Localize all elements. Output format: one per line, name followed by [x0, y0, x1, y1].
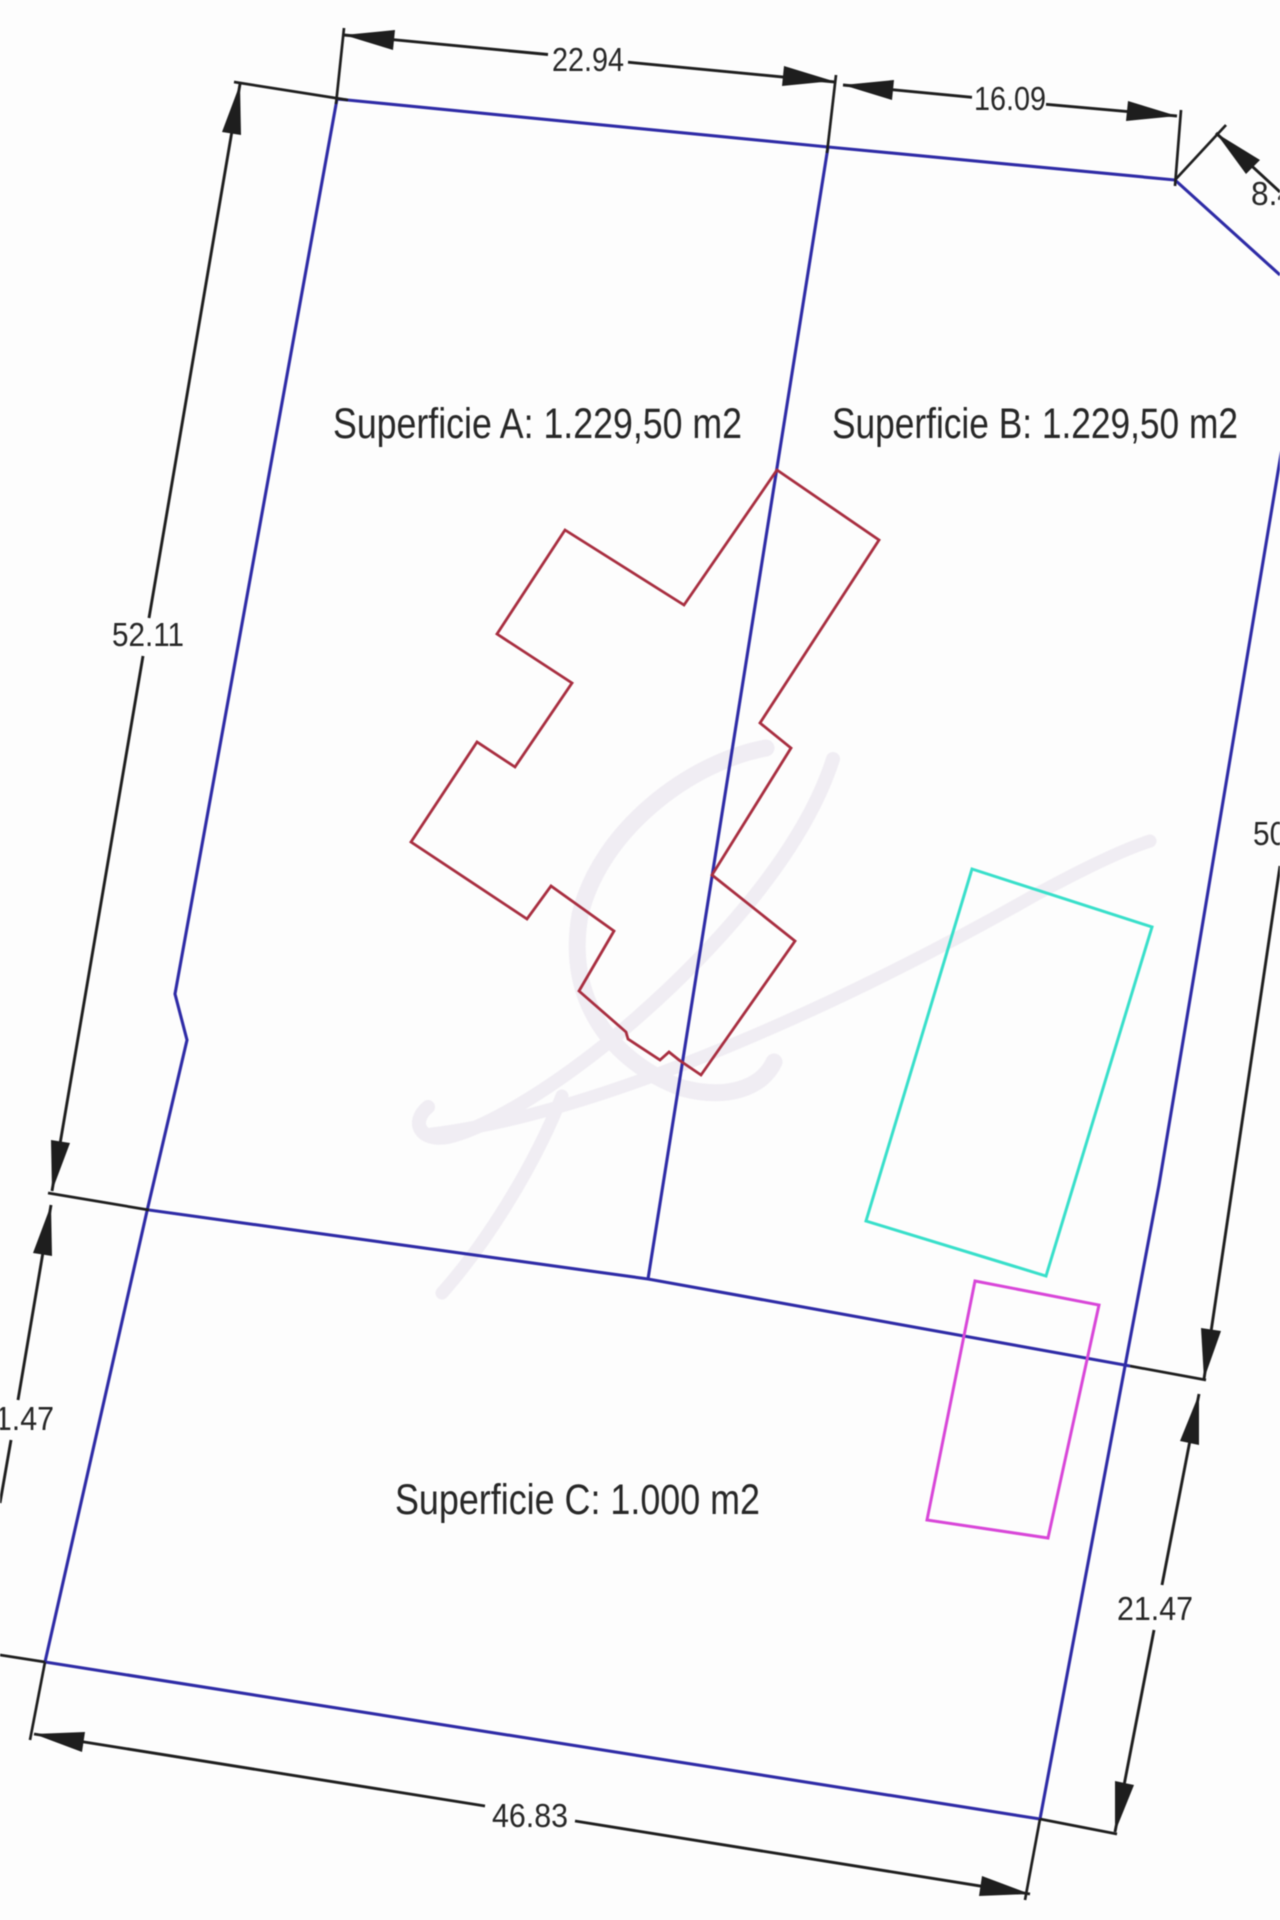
svg-text:52.11: 52.11: [112, 616, 184, 653]
svg-text:8.4: 8.4: [1251, 175, 1280, 212]
svg-text:Superficie C: 1.000 m2: Superficie C: 1.000 m2: [395, 1476, 760, 1524]
svg-text:21.47: 21.47: [0, 1400, 54, 1437]
svg-text:50.0: 50.0: [1253, 815, 1280, 852]
svg-text:21.47: 21.47: [1117, 1590, 1193, 1627]
svg-text:16.09: 16.09: [974, 80, 1046, 117]
svg-text:Superficie B: 1.229,50 m2: Superficie B: 1.229,50 m2: [832, 400, 1238, 448]
svg-text:46.83: 46.83: [492, 1797, 568, 1834]
svg-text:Superficie A: 1.229,50 m2: Superficie A: 1.229,50 m2: [333, 400, 742, 448]
svg-text:22.94: 22.94: [552, 41, 624, 78]
